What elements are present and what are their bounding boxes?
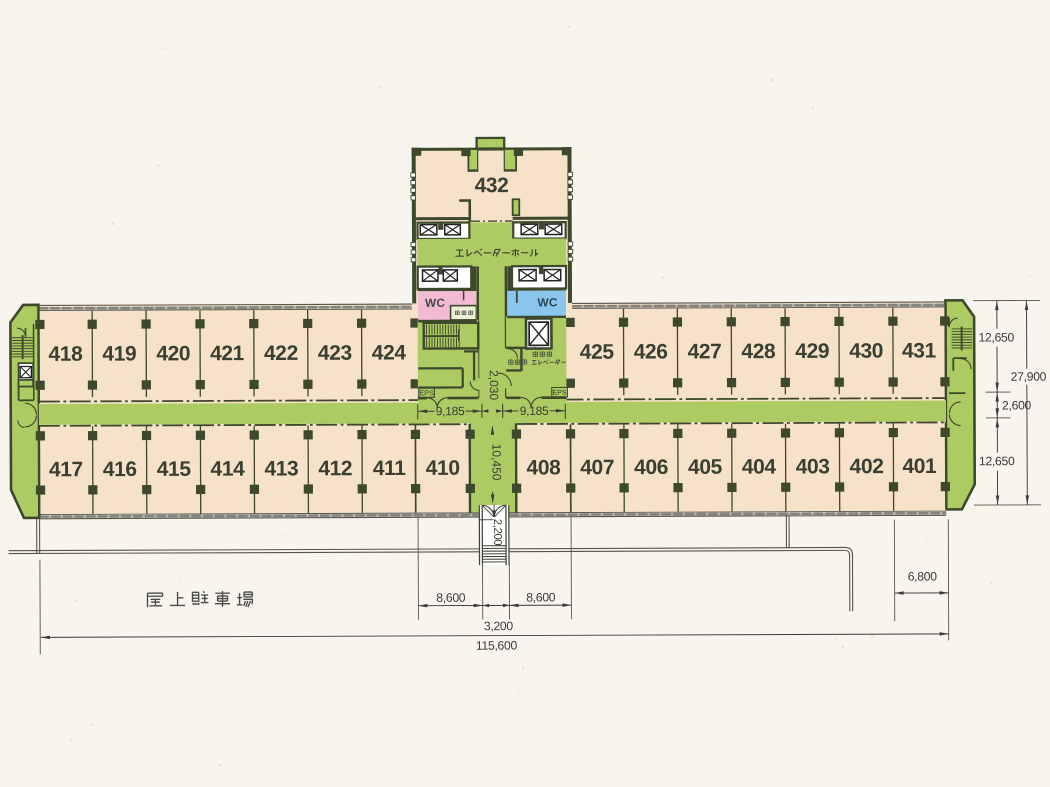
svg-text:420: 420 (156, 342, 190, 365)
svg-text:403: 403 (796, 455, 830, 478)
svg-text:3,200: 3,200 (484, 619, 514, 633)
svg-text:416: 416 (103, 458, 137, 481)
svg-text:402: 402 (850, 455, 884, 478)
svg-text:12,650: 12,650 (979, 454, 1015, 468)
svg-text:430: 430 (849, 340, 883, 363)
svg-text:2,200: 2,200 (491, 519, 503, 546)
svg-text:27,900: 27,900 (1011, 370, 1047, 384)
svg-text:406: 406 (634, 456, 668, 479)
svg-text:404: 404 (742, 456, 777, 479)
svg-text:WC: WC (537, 295, 557, 309)
svg-text:426: 426 (634, 340, 668, 363)
svg-text:2,600: 2,600 (1002, 398, 1032, 412)
svg-text:427: 427 (688, 340, 722, 363)
svg-text:6,800: 6,800 (908, 569, 938, 583)
svg-text:429: 429 (795, 340, 829, 363)
svg-text:12,650: 12,650 (978, 330, 1014, 344)
svg-text:421: 421 (210, 342, 245, 365)
svg-text:414: 414 (210, 458, 245, 481)
svg-text:415: 415 (157, 458, 192, 481)
svg-text:410: 410 (426, 457, 460, 480)
svg-text:423: 423 (318, 342, 352, 365)
svg-text:EPS: EPS (419, 388, 434, 397)
svg-text:407: 407 (580, 456, 614, 479)
svg-text:9,185: 9,185 (520, 404, 549, 418)
svg-text:408: 408 (526, 456, 561, 479)
svg-text:8,600: 8,600 (436, 591, 466, 605)
svg-text:432: 432 (475, 174, 509, 197)
svg-text:419: 419 (102, 342, 136, 365)
svg-text:401: 401 (902, 455, 937, 478)
svg-text:424: 424 (372, 341, 407, 364)
svg-text:405: 405 (688, 456, 723, 479)
svg-text:411: 411 (373, 457, 406, 480)
svg-text:412: 412 (318, 457, 352, 480)
svg-text:9,185: 9,185 (436, 404, 465, 418)
svg-text:422: 422 (264, 342, 298, 365)
svg-text:WC: WC (425, 296, 445, 310)
svg-text:425: 425 (580, 341, 615, 364)
svg-text:10,450: 10,450 (489, 444, 503, 481)
svg-text:8,600: 8,600 (526, 590, 556, 604)
svg-text:428: 428 (741, 340, 776, 363)
svg-text:413: 413 (264, 457, 298, 480)
svg-text:EPS: EPS (552, 388, 567, 397)
svg-text:417: 417 (49, 458, 83, 481)
svg-text:418: 418 (48, 343, 83, 366)
svg-text:2,030: 2,030 (487, 370, 501, 400)
svg-text:431: 431 (902, 339, 937, 362)
svg-text:115,600: 115,600 (476, 639, 518, 653)
